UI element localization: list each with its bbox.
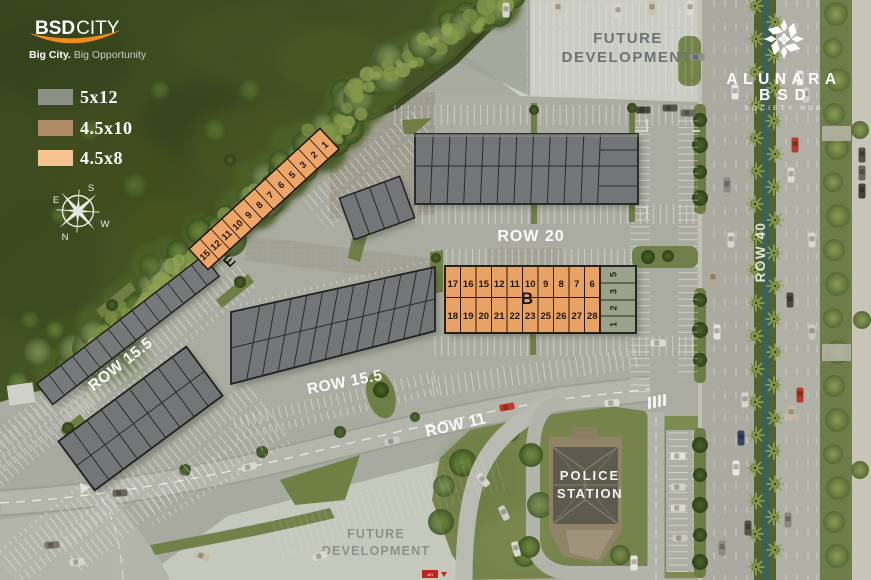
svg-text:2: 2 (608, 305, 618, 310)
svg-text:6: 6 (590, 279, 595, 290)
svg-text:20: 20 (479, 311, 490, 322)
svg-text:12: 12 (494, 279, 505, 290)
svg-text:19: 19 (463, 311, 474, 322)
svg-text:3: 3 (608, 289, 618, 294)
svg-text:9: 9 (543, 279, 548, 290)
svg-text:ROW 40: ROW 40 (753, 222, 768, 283)
svg-text:POLICE: POLICE (560, 468, 620, 483)
svg-text:22: 22 (510, 311, 521, 322)
svg-text:28: 28 (587, 311, 598, 322)
svg-text:N: N (62, 232, 69, 243)
svg-text:23: 23 (525, 311, 536, 322)
svg-text:4.5x10: 4.5x10 (80, 118, 133, 138)
svg-text:DEVELOPMENT: DEVELOPMENT (562, 49, 693, 66)
svg-text:26: 26 (556, 311, 567, 322)
svg-text:E: E (53, 195, 59, 206)
svg-text:DEVELOPMENT: DEVELOPMENT (322, 544, 430, 558)
svg-text:FUTURE: FUTURE (593, 30, 663, 47)
svg-text:17: 17 (448, 279, 459, 290)
svg-text:BSD: BSD (759, 87, 813, 104)
svg-text:5x12: 5x12 (80, 87, 118, 107)
svg-text:8: 8 (559, 279, 564, 290)
svg-text:27: 27 (572, 311, 583, 322)
svg-text:7: 7 (574, 279, 579, 290)
svg-text:16: 16 (463, 279, 474, 290)
svg-text:18: 18 (448, 311, 459, 322)
svg-text:ROW 20: ROW 20 (497, 228, 564, 245)
svg-text:4.5x8: 4.5x8 (80, 148, 123, 168)
svg-text:FUTURE: FUTURE (347, 527, 405, 541)
svg-text:15: 15 (479, 279, 490, 290)
svg-text:5: 5 (608, 272, 618, 277)
svg-text:25: 25 (541, 311, 552, 322)
svg-text:W: W (101, 219, 110, 230)
svg-text:SOCIETY HUB: SOCIETY HUB (744, 105, 823, 112)
svg-text:AH: AH (427, 572, 433, 577)
svg-text:Big City.Big Opportunity: Big City.Big Opportunity (29, 49, 147, 61)
svg-text:ALUNARA: ALUNARA (726, 71, 841, 88)
svg-text:S: S (88, 183, 94, 194)
svg-text:STATION: STATION (557, 486, 623, 501)
svg-text:21: 21 (494, 311, 505, 322)
svg-text:1: 1 (608, 322, 618, 327)
svg-text:11: 11 (510, 279, 521, 290)
svg-text:B: B (521, 289, 533, 308)
